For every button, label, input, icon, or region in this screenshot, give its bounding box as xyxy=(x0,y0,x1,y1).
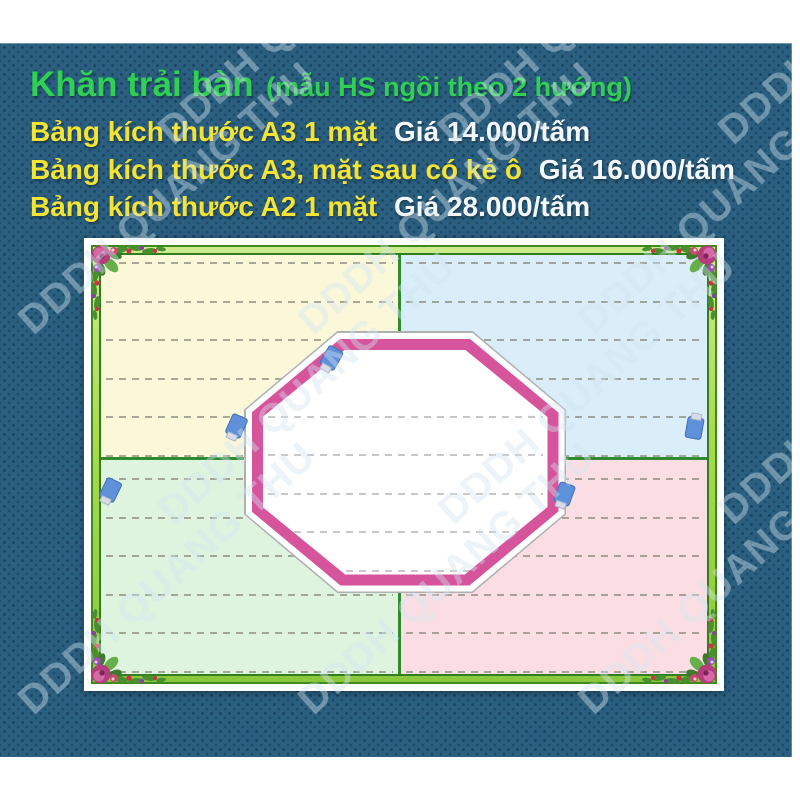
price-line-a2-1side: Bảng kích thước A2 1 mặt Giá 28.000/tấm xyxy=(30,188,780,226)
price-value: Giá 16.000/tấm xyxy=(539,154,735,185)
title-line: Khăn trải bàn (mẫu HS ngồi theo 2 hướng) xyxy=(30,65,780,105)
product-title: Khăn trải bàn xyxy=(30,65,254,104)
header: Khăn trải bàn (mẫu HS ngồi theo 2 hướng)… xyxy=(30,65,780,226)
tablecloth xyxy=(91,245,717,684)
product-subtitle: (mẫu HS ngồi theo 2 hướng) xyxy=(266,72,632,102)
product-photo xyxy=(84,238,724,691)
octagon-pink-border xyxy=(252,339,559,586)
octagon-writing-area xyxy=(263,350,548,575)
product-card: Khăn trải bàn (mẫu HS ngồi theo 2 hướng)… xyxy=(0,43,792,757)
price-line-a3-1side: Bảng kích thước A3 1 mặt Giá 14.000/tấm xyxy=(30,113,780,151)
page-background: Khăn trải bàn (mẫu HS ngồi theo 2 hướng)… xyxy=(0,0,800,800)
price-value: Giá 14.000/tấm xyxy=(394,116,590,147)
price-line-a3-grid-back: Bảng kích thước A3, mặt sau có kẻ ô Giá … xyxy=(30,151,780,189)
size-label: Bảng kích thước A2 1 mặt xyxy=(30,191,377,222)
size-label: Bảng kích thước A3, mặt sau có kẻ ô xyxy=(30,154,522,185)
price-value: Giá 28.000/tấm xyxy=(394,191,590,222)
size-label: Bảng kích thước A3 1 mặt xyxy=(30,116,377,147)
tablecloth-interior xyxy=(99,253,709,676)
center-octagon xyxy=(244,331,566,593)
